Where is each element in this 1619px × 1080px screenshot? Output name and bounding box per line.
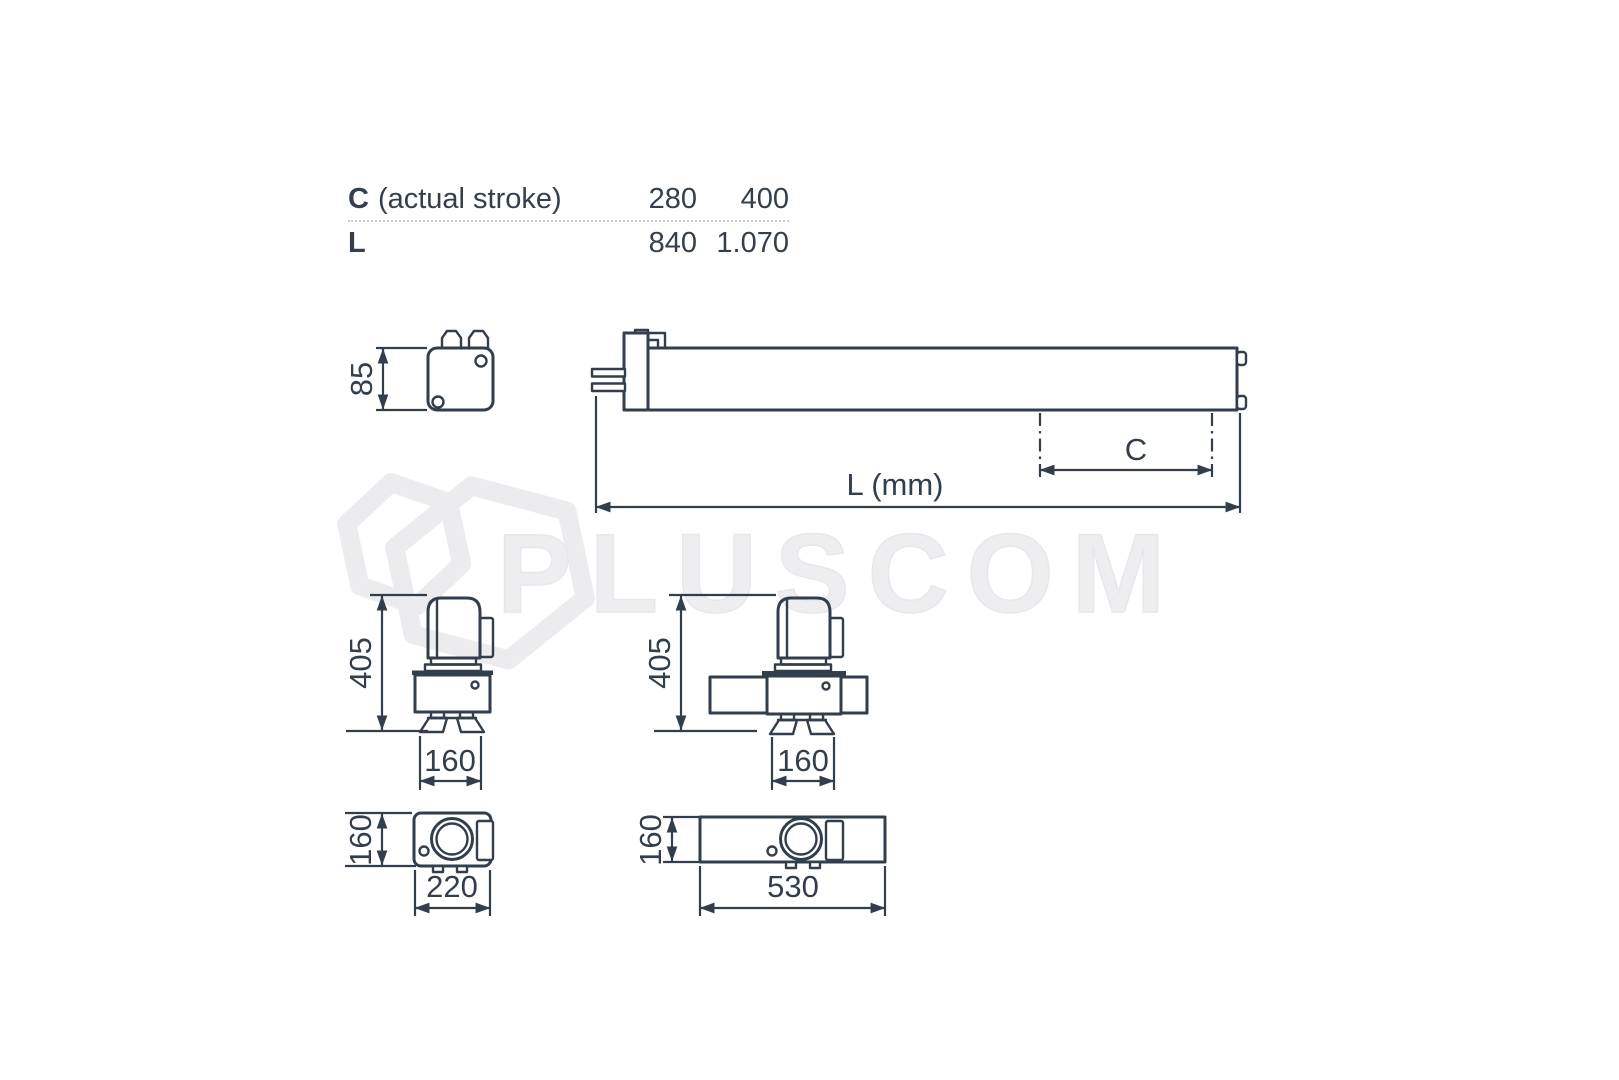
motor-circle-inner — [437, 824, 468, 855]
side-bracket — [826, 821, 843, 860]
dim-405-label: 405 — [642, 637, 677, 689]
end-nub — [1237, 352, 1246, 365]
beam-left — [710, 677, 767, 713]
actuator-body — [648, 348, 1237, 410]
mount-foot — [457, 718, 484, 732]
motor-flange — [425, 665, 481, 672]
dim-160-label: 160 — [343, 814, 378, 866]
body-hole — [472, 682, 479, 689]
mount-post — [442, 331, 461, 348]
drive-head — [624, 333, 648, 410]
mount-foot — [807, 720, 834, 734]
datasheet-page: { "table": { "rows": [ {"key": "C", "des… — [0, 0, 1619, 1080]
motor-flange — [775, 665, 831, 672]
dim-405-label: 405 — [343, 637, 378, 689]
small-hole — [420, 847, 429, 856]
mount-foot — [770, 720, 797, 734]
top-view-center-drawing: 160 530 — [633, 814, 885, 916]
mount-hole — [476, 356, 487, 367]
dim-530-label: 530 — [767, 869, 819, 904]
side-view-full-drawing: C L (mm) — [592, 330, 1246, 513]
foot-tab — [786, 862, 796, 868]
small-hole — [768, 847, 777, 856]
beam-right — [841, 677, 867, 713]
end-view-drawing: 85 — [344, 331, 493, 410]
mount-hole — [433, 397, 444, 408]
drive-body — [767, 676, 841, 714]
end-nub — [1237, 396, 1246, 409]
dim-160-label: 160 — [633, 814, 668, 866]
dim-160-label: 160 — [777, 743, 829, 778]
side-bracket — [477, 821, 493, 860]
dim-stroke-label: C — [1125, 432, 1147, 467]
dim-85-label: 85 — [344, 362, 379, 396]
top-view-left-drawing: 160 220 — [343, 813, 493, 916]
dim-160-label: 160 — [424, 743, 476, 778]
prong — [592, 384, 625, 392]
dim-220-label: 220 — [426, 869, 478, 904]
mount-post — [469, 331, 488, 348]
drive-body — [415, 675, 490, 712]
motor-circle-inner — [786, 824, 817, 855]
foot-tab — [810, 862, 820, 868]
dim-length-label: L (mm) — [847, 467, 944, 502]
body-hole — [823, 683, 830, 690]
prong — [592, 369, 625, 377]
watermark: PLUSCOM — [340, 448, 1183, 687]
technical-drawing: PLUSCOM 85 C L (mm) — [0, 0, 1619, 1080]
